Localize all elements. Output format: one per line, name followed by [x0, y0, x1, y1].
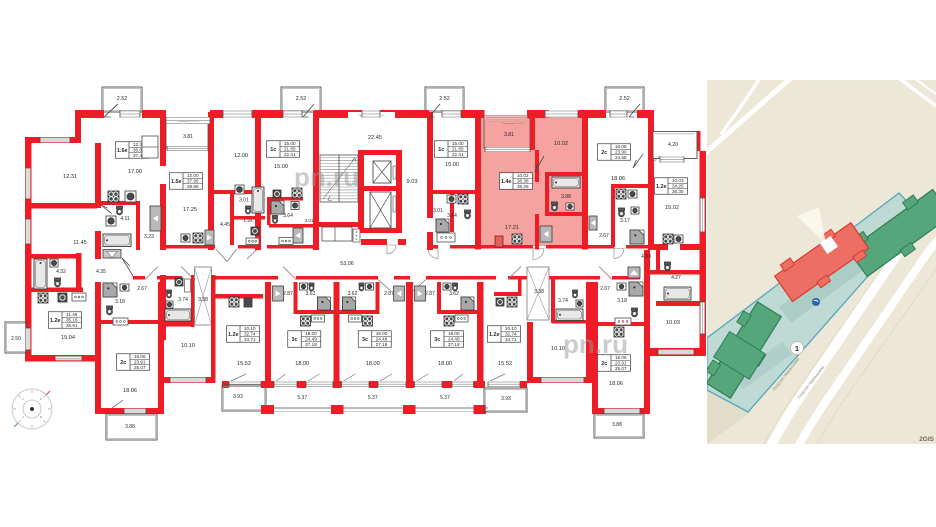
- svg-text:23.90: 23.90: [615, 150, 627, 155]
- svg-text:15.00: 15.00: [445, 162, 459, 168]
- svg-text:3.01: 3.01: [433, 208, 443, 214]
- svg-text:3.62: 3.62: [449, 291, 459, 297]
- svg-text:4.27: 4.27: [671, 275, 681, 281]
- svg-text:18.00: 18.00: [376, 331, 388, 336]
- svg-text:23.91: 23.91: [615, 361, 627, 366]
- svg-text:3.74: 3.74: [558, 298, 568, 304]
- svg-text:10.10: 10.10: [181, 343, 195, 349]
- svg-text:32.74: 32.74: [244, 332, 256, 337]
- svg-text:17.00: 17.00: [128, 169, 142, 175]
- svg-text:12.00: 12.00: [187, 173, 199, 178]
- svg-text:2с: 2с: [120, 360, 126, 366]
- svg-text:Помещение 17 и 1-9: Помещение 17 и 1-9: [503, 123, 525, 125]
- svg-text:1.6е: 1.6е: [117, 148, 128, 154]
- svg-text:21.65: 21.65: [452, 147, 464, 152]
- svg-text:10.10: 10.10: [244, 326, 256, 331]
- svg-text:5.37: 5.37: [368, 395, 378, 401]
- svg-text:3с: 3с: [362, 337, 368, 343]
- svg-text:2с: 2с: [601, 150, 607, 156]
- svg-text:34.71: 34.71: [505, 337, 517, 342]
- svg-text:3.81: 3.81: [504, 132, 514, 138]
- svg-text:15.04: 15.04: [61, 335, 75, 341]
- svg-text:3.23: 3.23: [144, 234, 154, 240]
- svg-text:2.67: 2.67: [600, 286, 610, 292]
- svg-text:4.32: 4.32: [56, 269, 66, 275]
- svg-text:3.88: 3.88: [561, 194, 571, 200]
- svg-text:2.52: 2.52: [439, 96, 450, 102]
- svg-text:24.49: 24.49: [305, 337, 317, 342]
- svg-text:3.81: 3.81: [183, 134, 193, 140]
- svg-text:10.02: 10.02: [554, 141, 568, 147]
- svg-text:27.18: 27.18: [305, 342, 317, 347]
- svg-text:10.03: 10.03: [672, 178, 684, 183]
- svg-text:32.74: 32.74: [505, 332, 517, 337]
- svg-text:15.00: 15.00: [452, 141, 464, 146]
- svg-text:18.00: 18.00: [366, 361, 380, 367]
- svg-text:3.64: 3.64: [447, 213, 457, 219]
- svg-text:3.93: 3.93: [501, 396, 511, 402]
- svg-text:36.38: 36.38: [517, 179, 529, 184]
- svg-text:25.07: 25.07: [615, 366, 627, 371]
- svg-text:35.16: 35.16: [66, 318, 78, 323]
- svg-text:2.67: 2.67: [137, 286, 147, 292]
- svg-text:18.00: 18.00: [295, 361, 309, 367]
- svg-text:10.02: 10.02: [517, 173, 529, 178]
- svg-text:1.2е: 1.2е: [50, 318, 61, 324]
- svg-text:3.18: 3.18: [115, 299, 125, 305]
- svg-text:1.4е: 1.4е: [501, 179, 512, 185]
- svg-text:5.37: 5.37: [297, 395, 307, 401]
- svg-text:10.10: 10.10: [505, 326, 517, 331]
- svg-text:22.41: 22.41: [452, 152, 464, 157]
- svg-text:1.5е: 1.5е: [171, 179, 182, 185]
- svg-text:2с: 2с: [601, 361, 607, 367]
- svg-text:4.20: 4.20: [668, 142, 678, 148]
- svg-text:15.52: 15.52: [237, 361, 251, 367]
- svg-text:36.35: 36.35: [672, 189, 684, 194]
- svg-text:53.06: 53.06: [340, 261, 354, 267]
- svg-text:3.93: 3.93: [233, 394, 243, 400]
- svg-text:4.11: 4.11: [120, 216, 130, 222]
- svg-text:22.45: 22.45: [368, 135, 382, 141]
- svg-text:2.52: 2.52: [619, 96, 630, 102]
- svg-text:3.01: 3.01: [239, 198, 249, 204]
- svg-text:17.25: 17.25: [183, 207, 197, 213]
- svg-text:18.06: 18.06: [134, 354, 146, 359]
- svg-text:15.02: 15.02: [665, 205, 679, 211]
- svg-text:3.62: 3.62: [348, 291, 358, 297]
- svg-text:12.31: 12.31: [63, 174, 77, 180]
- svg-text:1.2е: 1.2е: [228, 332, 239, 338]
- svg-text:4.35: 4.35: [96, 269, 106, 275]
- svg-text:27.18: 27.18: [376, 342, 388, 347]
- svg-text:10.03: 10.03: [666, 320, 680, 326]
- svg-text:3.18: 3.18: [617, 298, 627, 304]
- svg-text:39.86: 39.86: [187, 184, 199, 189]
- svg-text:1.2е: 1.2е: [656, 184, 667, 190]
- svg-text:17.21: 17.21: [505, 225, 519, 231]
- svg-text:38.29: 38.29: [517, 184, 529, 189]
- svg-text:15.00: 15.00: [284, 141, 296, 146]
- svg-text:2.52: 2.52: [296, 96, 307, 102]
- svg-text:2.50: 2.50: [11, 336, 21, 342]
- svg-text:1с: 1с: [438, 147, 444, 153]
- svg-text:9.03: 9.03: [407, 179, 418, 185]
- svg-text:2.67: 2.67: [599, 233, 609, 239]
- svg-text:4.93: 4.93: [641, 254, 651, 260]
- svg-text:24.66: 24.66: [615, 155, 627, 160]
- svg-text:1.24: 1.24: [244, 218, 253, 223]
- svg-text:18.06: 18.06: [615, 144, 627, 149]
- svg-text:5.37: 5.37: [440, 395, 450, 401]
- svg-text:3.64: 3.64: [283, 213, 293, 219]
- svg-text:Помещение 17 и 1-9: Помещение 17 и 1-9: [178, 121, 200, 123]
- svg-text:3.01: 3.01: [305, 218, 314, 223]
- svg-text:3.38: 3.38: [534, 289, 544, 295]
- svg-text:22.41: 22.41: [284, 152, 296, 157]
- svg-text:34.25: 34.25: [672, 184, 684, 189]
- svg-text:12.00: 12.00: [234, 153, 248, 159]
- svg-text:2.52: 2.52: [117, 96, 128, 102]
- svg-text:15.00: 15.00: [274, 164, 288, 170]
- svg-text:3.17: 3.17: [620, 218, 630, 224]
- svg-text:18.06: 18.06: [611, 176, 625, 182]
- svg-text:3.74: 3.74: [178, 297, 188, 303]
- svg-text:18.06: 18.06: [123, 388, 137, 394]
- svg-text:27.18: 27.18: [448, 342, 460, 347]
- svg-text:3.62: 3.62: [306, 291, 316, 297]
- svg-text:18.00: 18.00: [438, 361, 452, 367]
- svg-text:4.45: 4.45: [220, 222, 230, 228]
- svg-text:в: в: [40, 397, 42, 401]
- svg-text:18.06: 18.06: [609, 381, 623, 387]
- svg-text:24.49: 24.49: [448, 337, 460, 342]
- svg-text:21.65: 21.65: [284, 147, 296, 152]
- svg-text:2.87: 2.87: [384, 291, 394, 297]
- svg-text:24.49: 24.49: [376, 337, 388, 342]
- svg-text:1.2е: 1.2е: [489, 332, 500, 338]
- svg-text:pn.ru: pn.ru: [294, 162, 359, 192]
- svg-text:15.52: 15.52: [498, 361, 512, 367]
- svg-text:35.91: 35.91: [66, 323, 78, 328]
- svg-text:1: 1: [795, 344, 799, 353]
- svg-text:34.71: 34.71: [244, 337, 256, 342]
- svg-text:3.88: 3.88: [612, 422, 622, 428]
- svg-text:18.00: 18.00: [305, 331, 317, 336]
- svg-text:1с: 1с: [270, 147, 276, 153]
- svg-text:23.91: 23.91: [134, 360, 146, 365]
- svg-text:3.38: 3.38: [198, 297, 208, 303]
- svg-text:18.00: 18.00: [448, 331, 460, 336]
- svg-text:25.07: 25.07: [134, 365, 146, 370]
- svg-text:37.95: 37.95: [187, 179, 199, 184]
- svg-text:3с: 3с: [434, 337, 440, 343]
- svg-text:11.45: 11.45: [66, 312, 78, 317]
- svg-text:2.87: 2.87: [425, 291, 435, 297]
- svg-text:11.45: 11.45: [73, 240, 87, 246]
- svg-text:2.87: 2.87: [283, 291, 293, 297]
- svg-text:pn.ru: pn.ru: [563, 329, 628, 359]
- svg-text:3с: 3с: [292, 337, 298, 343]
- svg-text:3.88: 3.88: [125, 424, 135, 430]
- svg-text:2GIS: 2GIS: [919, 436, 934, 443]
